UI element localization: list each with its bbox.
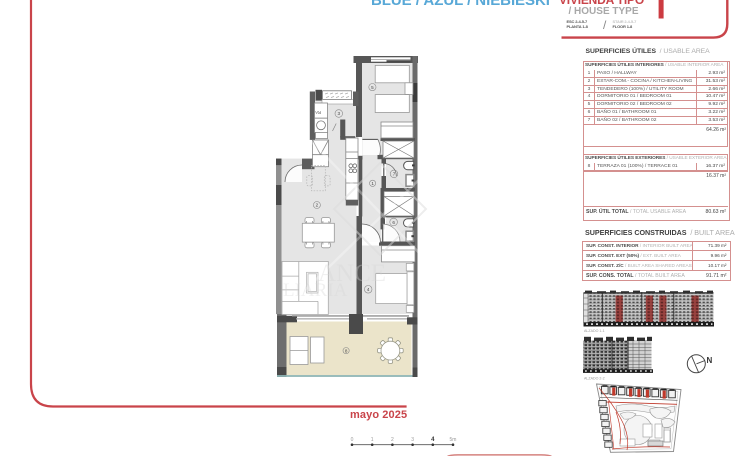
svg-text:6: 6 — [392, 220, 395, 225]
svg-text:7: 7 — [393, 172, 396, 177]
svg-text:RA: RA — [315, 110, 321, 115]
svg-text:4: 4 — [431, 437, 435, 443]
svg-text:LIARIA: LIARIA — [283, 280, 348, 301]
svg-text:5: 5 — [371, 85, 374, 90]
svg-text:1: 1 — [371, 181, 374, 186]
svg-text:3: 3 — [338, 111, 341, 116]
svg-text:8: 8 — [345, 348, 348, 353]
svg-text:N: N — [707, 356, 713, 365]
svg-text:5m: 5m — [450, 437, 457, 443]
svg-text:4: 4 — [367, 287, 370, 292]
svg-text:ALZADO 1-1: ALZADO 1-1 — [584, 329, 605, 333]
svg-text:3: 3 — [411, 437, 414, 443]
svg-text:0: 0 — [351, 437, 354, 443]
svg-text:2: 2 — [391, 437, 394, 443]
svg-text:1: 1 — [371, 437, 374, 443]
svg-text:2: 2 — [316, 203, 319, 208]
svg-text:ALZADO 2-2: ALZADO 2-2 — [584, 377, 605, 381]
